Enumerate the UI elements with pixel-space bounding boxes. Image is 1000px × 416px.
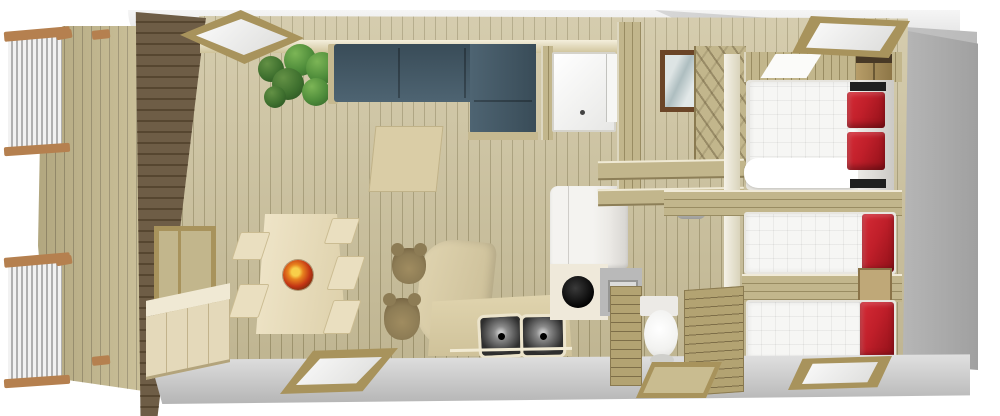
- kitchen-front-counter: [450, 347, 572, 386]
- sideboard: [146, 283, 230, 385]
- orange-decor-bowl: [283, 260, 313, 290]
- sofa-chaise-section: [470, 44, 536, 134]
- bedside-cube: [858, 268, 892, 302]
- single-bed-duvet: [748, 302, 862, 358]
- skylight: [788, 356, 892, 390]
- bar-stool: [384, 298, 420, 340]
- red-pillow: [860, 302, 894, 358]
- window-mullion: [178, 231, 181, 301]
- single-bed-duvet: [746, 214, 864, 272]
- skylight-glass: [296, 357, 382, 385]
- master-bed-fold: [744, 158, 862, 188]
- red-pillow: [847, 92, 885, 128]
- railing-post: [92, 355, 111, 366]
- skylight: [792, 16, 910, 58]
- skylight-glass: [802, 362, 878, 384]
- area-rug: [369, 126, 444, 192]
- round-black-basin: [562, 276, 594, 308]
- railing-post: [92, 29, 111, 40]
- shower-drain: [580, 110, 585, 115]
- toilet-bowl: [644, 310, 678, 358]
- red-pillow: [862, 214, 894, 272]
- shelf-top: [598, 159, 744, 181]
- floorplan-3d-render: [0, 0, 1000, 416]
- terrace-railing-top: [8, 36, 62, 148]
- skylight-glass: [806, 23, 896, 51]
- bar-stool: [392, 248, 426, 284]
- bedside-ledge: [850, 179, 886, 188]
- bedside-ledge: [850, 82, 886, 91]
- red-pillow: [847, 132, 885, 170]
- toilet: [638, 296, 682, 366]
- terrace-railing-bottom: [8, 262, 62, 380]
- sofa-base-trim: [468, 132, 538, 140]
